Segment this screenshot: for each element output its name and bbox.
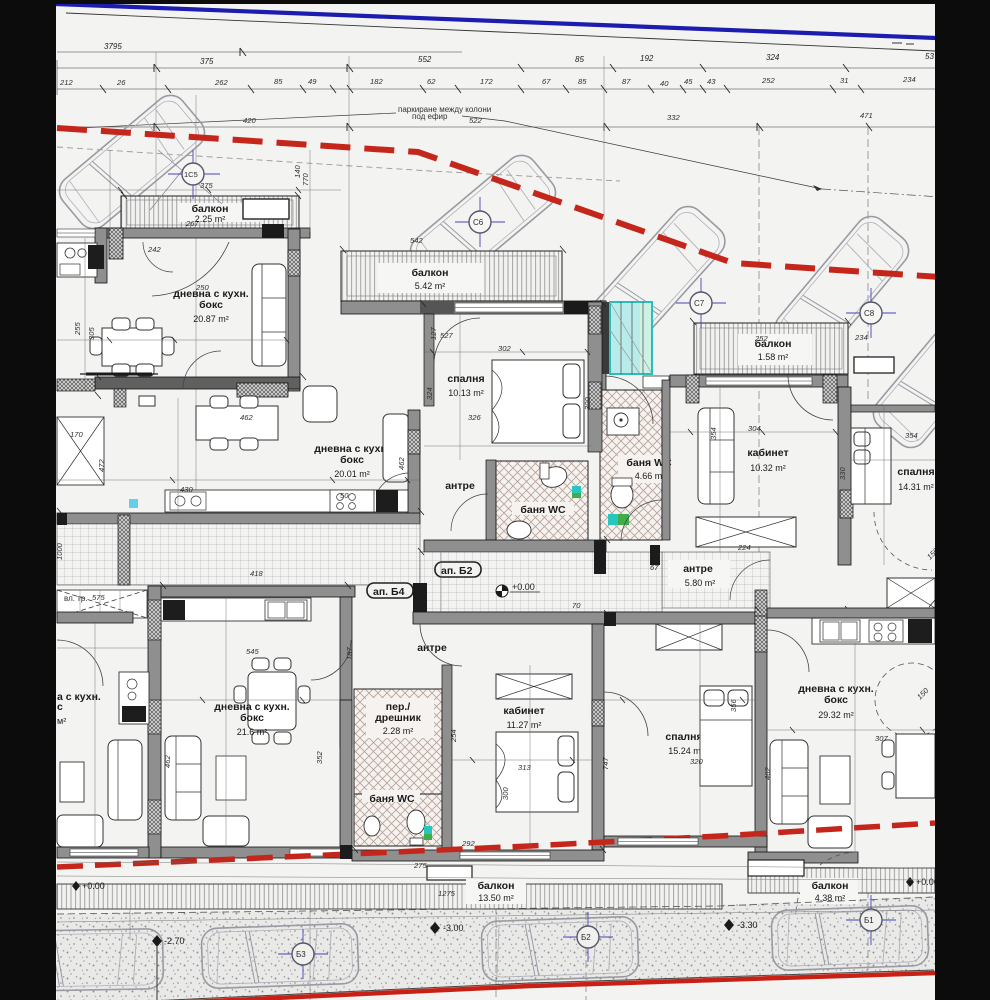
svg-text:292: 292 [461,839,475,848]
svg-text:4.66 m²: 4.66 m² [635,471,666,481]
svg-text:кабинет: кабинет [747,447,788,459]
svg-text:67: 67 [542,77,551,86]
svg-text:2.25 m²: 2.25 m² [195,214,226,224]
svg-text:20.87 m²: 20.87 m² [193,314,229,324]
svg-text:26: 26 [116,78,126,87]
svg-text:1С5: 1С5 [184,170,198,179]
svg-text:1275: 1275 [438,889,456,898]
svg-text:255: 255 [73,322,82,336]
svg-text:бокс: бокс [824,694,848,706]
svg-text:45: 45 [684,77,693,86]
svg-text:антре: антре [445,480,475,492]
svg-text:300: 300 [501,787,510,800]
svg-text:11.27 m²: 11.27 m² [507,720,542,730]
svg-text:330: 330 [838,467,847,480]
svg-text:375: 375 [200,57,214,66]
svg-text:21.6 m²: 21.6 m² [237,727,268,737]
svg-text:267: 267 [185,219,199,228]
svg-text:462: 462 [763,767,772,780]
svg-text:спалня: спалня [897,466,934,478]
svg-text:ап. Б2: ап. Б2 [441,565,473,577]
svg-text:Б3: Б3 [296,950,306,959]
svg-text:192: 192 [640,54,654,63]
svg-text:бокс: бокс [240,712,264,724]
svg-text:50: 50 [340,491,349,500]
svg-text:спалня: спалня [665,731,702,743]
svg-text:302: 302 [498,344,511,353]
svg-text:вл. тр.: вл. тр. [64,594,88,603]
svg-text:354: 354 [905,431,918,440]
svg-text:234: 234 [854,333,868,342]
svg-text:10.32 m²: 10.32 m² [750,463,786,473]
svg-text:-3.00: -3.00 [443,923,464,933]
svg-text:антре: антре [417,642,447,654]
svg-text:254: 254 [449,729,458,743]
svg-text:462: 462 [397,457,406,470]
svg-text:баня WC: баня WC [520,504,566,516]
svg-text:с: с [57,701,63,713]
svg-text:262: 262 [214,78,228,87]
svg-text:352: 352 [315,751,324,764]
svg-text:3795: 3795 [104,42,122,51]
svg-text:5.42 m²: 5.42 m² [415,281,446,291]
svg-text:С8: С8 [864,309,875,318]
svg-text:балкон: балкон [812,880,849,892]
svg-text:балкон: балкон [412,267,449,279]
svg-text:-3.30: -3.30 [737,920,758,930]
svg-text:+0.00: +0.00 [82,881,105,891]
svg-text:172: 172 [480,77,493,86]
svg-text:ап. Б4: ап. Б4 [373,586,405,598]
svg-text:332: 332 [667,113,680,122]
svg-text:антре: антре [683,563,713,575]
svg-text:320: 320 [690,757,703,766]
svg-text:356: 356 [729,699,738,712]
svg-text:53: 53 [925,52,934,61]
svg-text:85: 85 [578,77,587,86]
svg-text:1.58 m²: 1.58 m² [758,352,789,362]
svg-text:С6: С6 [473,218,484,227]
svg-text:14.31 m²: 14.31 m² [898,482,934,492]
svg-text:242: 242 [147,245,161,254]
svg-text:спалня: спалня [447,373,484,385]
svg-text:29.32 m²: 29.32 m² [818,710,854,720]
svg-text:5.80 m²: 5.80 m² [685,578,716,588]
svg-text:13.50 m²: 13.50 m² [478,893,514,903]
svg-text:43: 43 [707,77,716,86]
svg-text:+0.00: +0.00 [512,582,535,592]
svg-text:а с кухн.: а с кухн. [57,691,101,703]
svg-text:187: 187 [345,647,354,660]
svg-text:балкон: балкон [478,880,515,892]
svg-text:40: 40 [660,79,669,88]
svg-text:575: 575 [92,593,105,602]
svg-text:Б1: Б1 [864,916,874,925]
svg-text:1000: 1000 [55,542,64,560]
svg-text:бокс: бокс [340,454,364,466]
svg-text:418: 418 [250,569,263,578]
svg-text:20.01 m²: 20.01 m² [334,469,370,479]
svg-text:420: 420 [243,116,256,125]
svg-text:430: 430 [180,485,193,494]
svg-text:под ефир: под ефир [412,112,448,121]
svg-text:375: 375 [200,181,213,190]
svg-text:182: 182 [370,77,383,86]
svg-text:212: 212 [59,78,73,87]
svg-text:Б2: Б2 [581,933,591,942]
svg-text:326: 326 [468,413,481,422]
svg-text:м²: м² [57,716,66,726]
svg-text:313: 313 [518,763,531,772]
svg-text:127: 127 [429,327,438,340]
svg-text:баня WC: баня WC [369,793,415,805]
svg-text:-2.70: -2.70 [164,936,185,946]
svg-text:307: 307 [875,734,888,743]
svg-text:2.28 m²: 2.28 m² [383,726,414,736]
svg-text:бокс: бокс [199,299,223,311]
svg-text:85: 85 [575,55,584,64]
svg-text:545: 545 [246,647,259,656]
svg-text:305: 305 [87,327,96,340]
svg-text:10.13 m²: 10.13 m² [448,388,484,398]
svg-text:170: 170 [70,430,83,439]
svg-text:кабинет: кабинет [503,705,544,717]
svg-text:85: 85 [274,77,283,86]
svg-text:324: 324 [766,53,780,62]
svg-text:275: 275 [413,861,427,870]
svg-text:252: 252 [754,334,768,343]
svg-text:462: 462 [240,413,253,422]
svg-text:552: 552 [418,55,432,64]
svg-text:49: 49 [308,77,317,86]
svg-text:770: 770 [301,173,310,186]
svg-text:87: 87 [622,77,631,86]
svg-text:234: 234 [902,75,916,84]
svg-text:252: 252 [761,76,775,85]
svg-text:324: 324 [425,387,434,400]
svg-text:250: 250 [195,283,209,292]
svg-text:354: 354 [709,427,718,440]
svg-text:304: 304 [748,424,761,433]
svg-text:224: 224 [737,543,751,552]
svg-text:31: 31 [840,76,848,85]
svg-text:471: 471 [860,111,873,120]
svg-text:300: 300 [583,397,592,410]
svg-text:62: 62 [427,77,436,86]
svg-text:70: 70 [572,601,581,610]
svg-text:С7: С7 [694,299,705,308]
svg-text:15.24 m²: 15.24 m² [668,746,704,756]
svg-text:472: 472 [97,459,106,472]
svg-text:462: 462 [163,755,172,768]
svg-text:542: 542 [410,236,423,245]
svg-text:дрешник: дрешник [375,712,421,724]
svg-text:747: 747 [601,757,610,770]
